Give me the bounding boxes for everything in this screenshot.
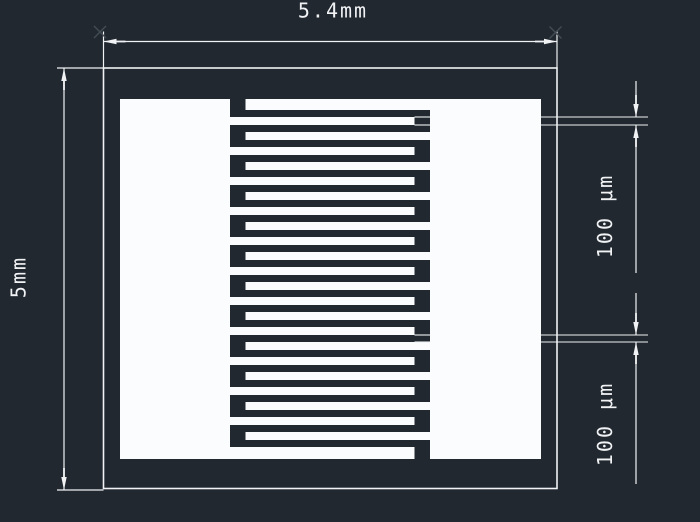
finger-right (246, 432, 431, 440)
finger-right (246, 99, 431, 110)
finger-right (246, 132, 431, 140)
left-electrode-pad (120, 99, 230, 459)
right-electrode-pad (430, 99, 541, 459)
finger-left (230, 177, 415, 185)
finger-left (230, 207, 415, 215)
finger-left (230, 327, 415, 335)
finger-left (230, 387, 415, 395)
dim-finger-gap-label: 100 μm (593, 382, 617, 466)
finger-right (246, 192, 431, 200)
finger-right (246, 372, 431, 380)
finger-left (230, 357, 415, 365)
cad-canvas: 5.4mm 5mm 100 μm 100 μm (0, 0, 700, 522)
finger-right (246, 162, 431, 170)
dim-finger-width-label: 100 μm (593, 174, 617, 258)
finger-right (246, 282, 431, 290)
dim-height-label: 5mm (7, 256, 31, 298)
dim-width-label: 5.4mm (298, 0, 368, 23)
finger-left (230, 117, 415, 125)
finger-left (230, 417, 415, 425)
finger-right (246, 252, 431, 260)
finger-right (246, 312, 431, 320)
finger-right (246, 222, 431, 230)
finger-left (230, 237, 415, 245)
finger-left (230, 267, 415, 275)
cad-viewport: 5.4mm 5mm 100 μm 100 μm (0, 0, 700, 522)
finger-right (246, 402, 431, 410)
finger-right (246, 342, 431, 350)
finger-left (230, 147, 415, 155)
finger-left (230, 447, 415, 459)
finger-left (230, 297, 415, 305)
